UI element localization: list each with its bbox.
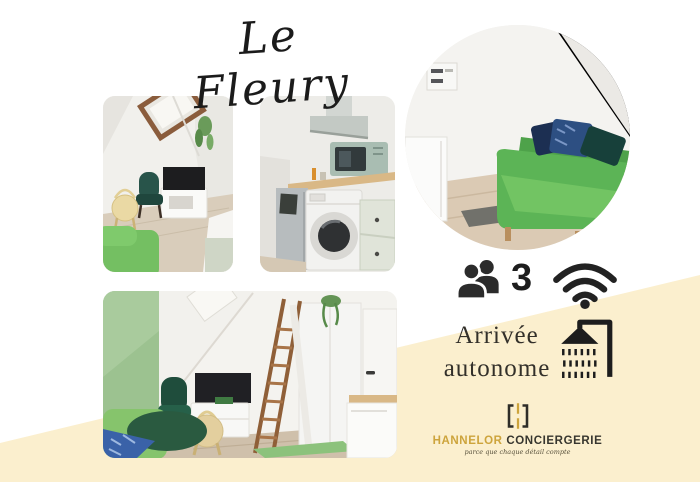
bedroom-illustration <box>103 291 397 458</box>
kitchen-illustration <box>260 96 395 272</box>
people-icon <box>455 256 503 300</box>
cabinet-drawers <box>360 200 395 270</box>
photo-bedroom-mezzanine <box>103 291 397 458</box>
hannelor-monogram-icon <box>503 400 533 432</box>
listing-flyer: Le Fleury <box>0 0 700 500</box>
brand-name-primary: HANNELOR <box>433 435 503 447</box>
photo-kitchen <box>260 96 395 272</box>
mini-fridge <box>347 395 397 458</box>
washing-machine-shape <box>306 190 362 270</box>
electrical-panel <box>427 63 457 90</box>
brand-tagline: parce que chaque détail compte <box>415 448 620 456</box>
sofa-circle-illustration <box>405 25 630 250</box>
wifi-icon <box>551 256 619 310</box>
shower-feature <box>555 314 617 387</box>
attic-lounge-illustration <box>103 96 233 272</box>
capacity-feature: 3 <box>455 256 532 300</box>
wifi-feature <box>551 256 619 310</box>
photo-green-sofa-circle <box>405 25 630 250</box>
arrival-line1: Arrivée <box>427 320 567 353</box>
brand-name-secondary: CONCIERGERIE <box>506 435 602 447</box>
page-title: Le Fleury <box>157 4 384 121</box>
shower-icon <box>555 314 617 382</box>
arrival-line2: autonome <box>427 353 567 386</box>
microwave-shape <box>330 142 388 176</box>
capacity-count: 3 <box>511 259 532 297</box>
brand-name: HANNELOR CONCIERGERIE <box>415 435 620 447</box>
brand-block: HANNELOR CONCIERGERIE parce que chaque d… <box>415 400 620 456</box>
photo-attic-lounge <box>103 96 233 272</box>
arrival-text: Arrivée autonome <box>427 320 567 385</box>
